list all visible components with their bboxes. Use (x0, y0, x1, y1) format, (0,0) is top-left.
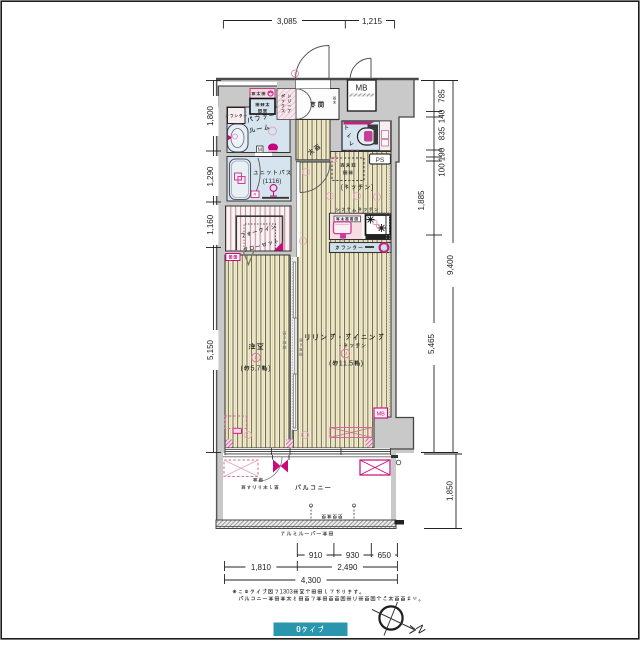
svg-text:): ) (361, 359, 363, 368)
svg-text:PS: PS (376, 157, 385, 164)
svg-text:930: 930 (346, 551, 360, 560)
svg-text:1,160: 1,160 (206, 214, 215, 235)
svg-text:5: 5 (349, 359, 353, 368)
svg-text:9,400: 9,400 (446, 254, 455, 275)
svg-text:835: 835 (438, 126, 447, 140)
svg-text:7: 7 (257, 364, 261, 373)
svg-text:650: 650 (378, 551, 392, 560)
svg-text:3,085: 3,085 (277, 17, 298, 26)
svg-text:785: 785 (438, 89, 447, 103)
svg-text:0: 0 (296, 625, 301, 634)
svg-text:MB: MB (356, 84, 368, 93)
svg-text:190: 190 (438, 147, 447, 161)
svg-text:1,290: 1,290 (206, 166, 215, 187)
svg-text:): ) (268, 364, 270, 373)
svg-text:1,800: 1,800 (206, 105, 215, 126)
svg-text:140: 140 (438, 109, 447, 123)
svg-text:100: 100 (438, 163, 447, 177)
svg-text:1,850: 1,850 (446, 480, 455, 501)
svg-text:M: M (258, 147, 262, 153)
svg-text:1,885: 1,885 (417, 190, 426, 211)
svg-text:1,215: 1,215 (362, 17, 383, 26)
svg-text:MB: MB (377, 412, 386, 418)
svg-text:5,465: 5,465 (427, 333, 436, 354)
svg-text:910: 910 (309, 551, 323, 560)
svg-text:2,490: 2,490 (337, 563, 358, 572)
svg-text:1,810: 1,810 (251, 563, 272, 572)
svg-text:4,300: 4,300 (301, 576, 322, 585)
svg-text:): ) (279, 178, 281, 185)
svg-text:R: R (254, 192, 257, 197)
svg-text:): ) (371, 184, 373, 191)
svg-text:5,150: 5,150 (206, 339, 215, 360)
